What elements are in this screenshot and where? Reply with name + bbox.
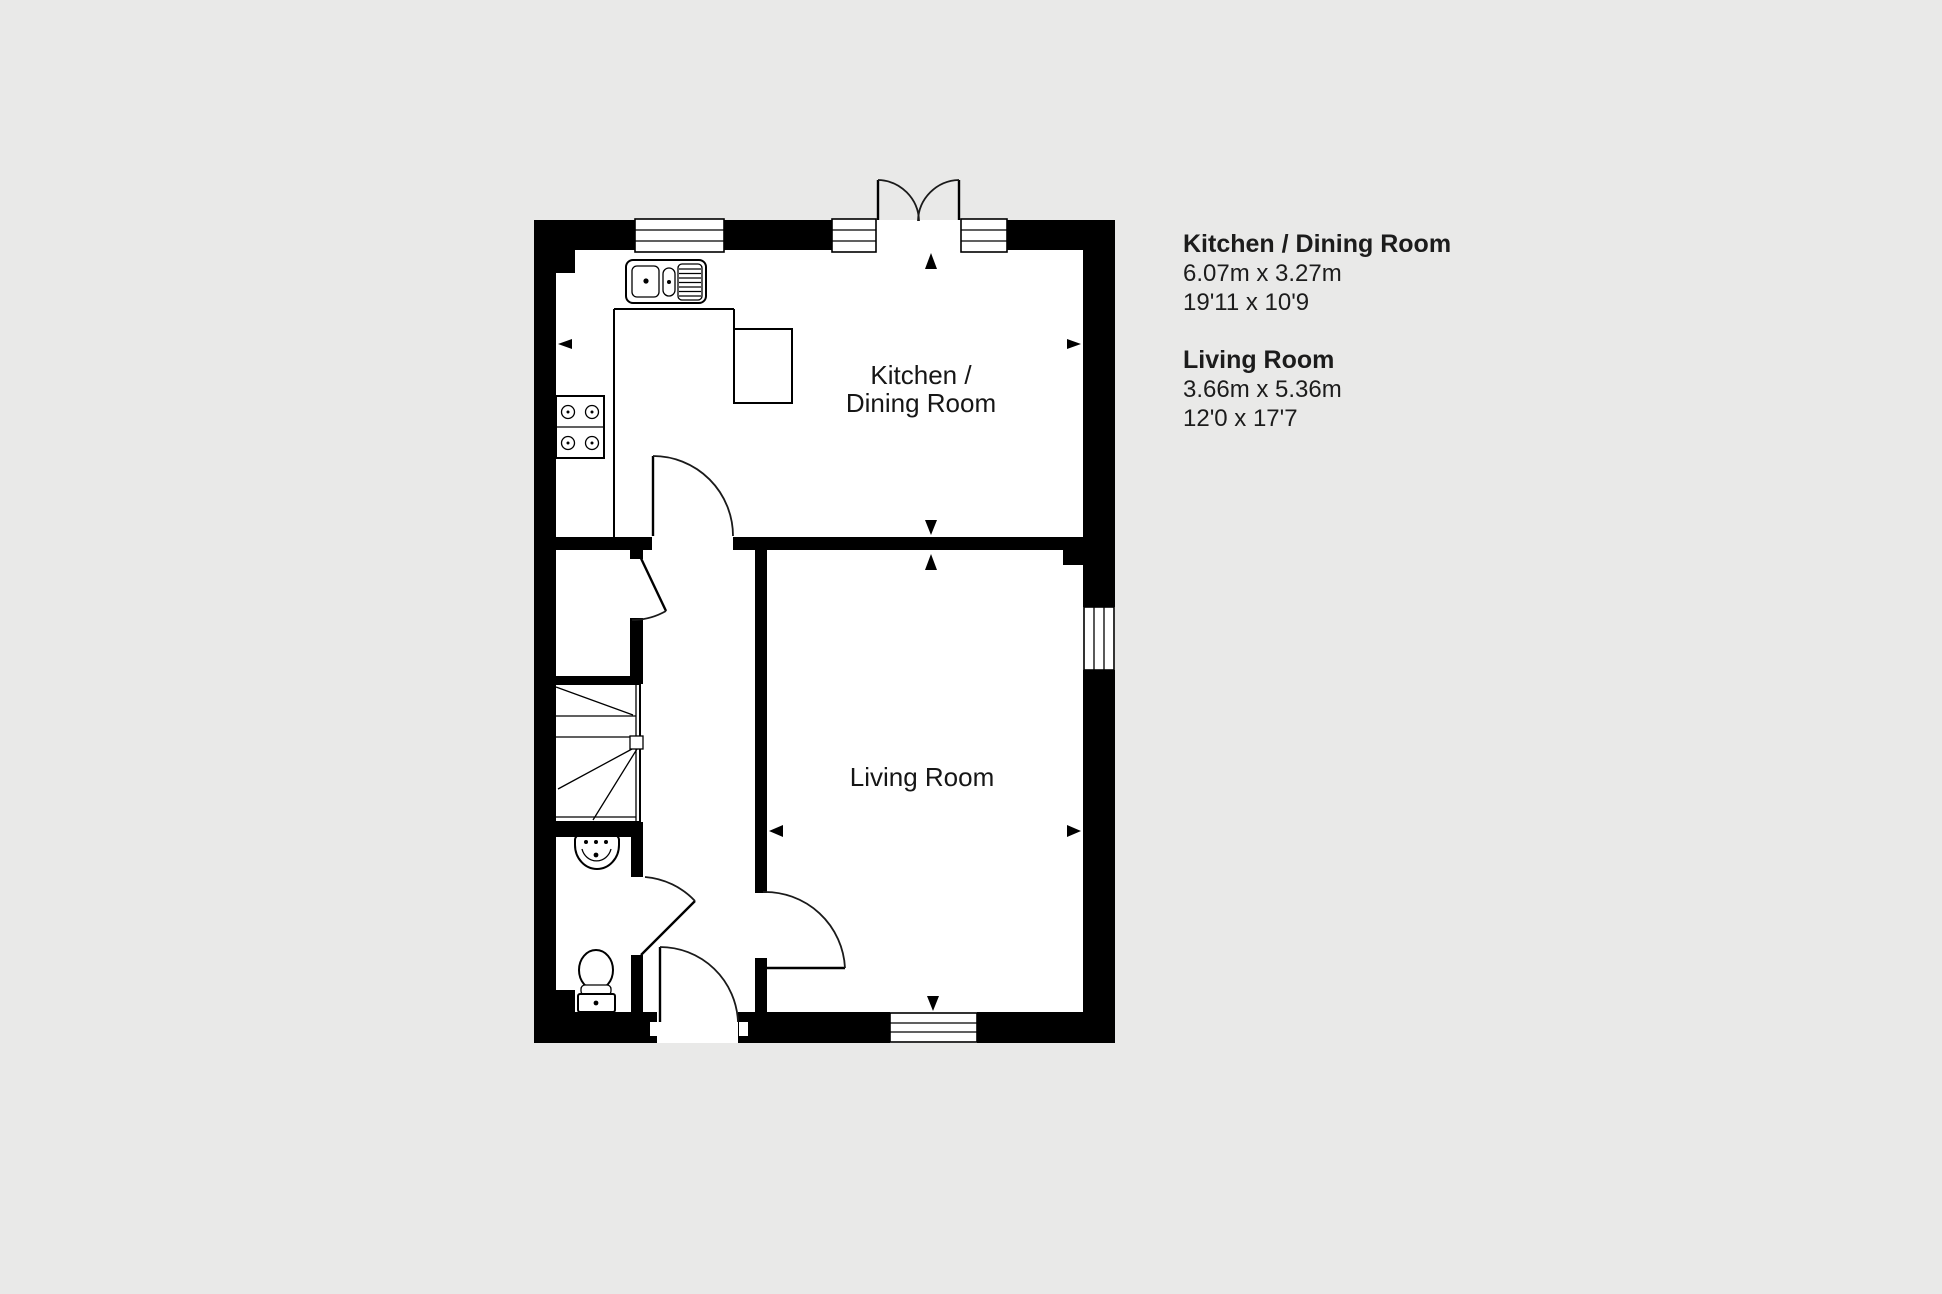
wall-living-left xyxy=(755,550,767,893)
wall-bottom xyxy=(738,1012,890,1043)
toilet-bowl xyxy=(579,950,613,990)
legend-room-name: Kitchen / Dining Room xyxy=(1183,230,1451,259)
kitchen-label-line1: Kitchen / xyxy=(870,360,972,390)
sink-tap xyxy=(643,278,648,283)
burner-dot xyxy=(567,411,570,414)
legend-room-metric: 3.66m x 5.36m xyxy=(1183,375,1451,404)
wall-left xyxy=(534,220,556,1043)
window-kitchen-top xyxy=(635,219,724,252)
legend: Kitchen / Dining Room 6.07m x 3.27m 19'1… xyxy=(1183,230,1451,462)
sink-tap xyxy=(667,280,671,284)
legend-room-metric: 6.07m x 3.27m xyxy=(1183,259,1451,288)
wall-step xyxy=(1063,548,1115,565)
french-doors xyxy=(878,180,959,221)
wall-stairs-top xyxy=(553,676,630,684)
stair-newel xyxy=(630,736,643,749)
window-frame xyxy=(832,219,876,252)
door-swing-arc xyxy=(918,180,959,221)
window-top-right-of-door xyxy=(961,219,1007,252)
basin-drain xyxy=(594,853,599,858)
floor-plan: Kitchen / Dining Room Living Room xyxy=(0,0,1942,1294)
wall-divider xyxy=(630,618,643,684)
wall-bottom xyxy=(977,1012,1115,1043)
legend-room-imperial: 19'11 x 10'9 xyxy=(1183,288,1451,317)
wall-bottom xyxy=(534,1012,657,1043)
legend-room-imperial: 12'0 x 17'7 xyxy=(1183,404,1451,433)
toilet-flush xyxy=(594,1001,599,1006)
door-jamb xyxy=(739,1022,748,1036)
wall-top xyxy=(1007,220,1115,250)
wall-stairs-bottom xyxy=(553,822,643,837)
wall-living-left xyxy=(755,958,767,1012)
wall-pier xyxy=(556,990,575,1012)
hob-icon xyxy=(556,396,604,458)
window-frame xyxy=(635,219,724,252)
sink-icon xyxy=(626,260,706,303)
burner-dot xyxy=(591,442,594,445)
wall-wc xyxy=(631,837,643,877)
window-frame xyxy=(961,219,1007,252)
wall-right xyxy=(1083,670,1115,1043)
window-living-right xyxy=(1084,607,1114,670)
wall-kitchen-living xyxy=(556,537,652,550)
wall-step xyxy=(556,250,575,273)
burner-dot xyxy=(567,442,570,445)
drainer-lines xyxy=(679,269,701,296)
floorplan-page: Kitchen / Dining Room Living Room Kitche… xyxy=(0,0,1942,1294)
basin-tap xyxy=(594,840,598,844)
door-swing-arc xyxy=(878,180,919,221)
stair-outline xyxy=(553,684,640,822)
burner-dot xyxy=(591,411,594,414)
legend-kitchen-block: Kitchen / Dining Room 6.07m x 3.27m 19'1… xyxy=(1183,230,1451,317)
living-room-label: Living Room xyxy=(850,762,995,792)
window-frame xyxy=(890,1013,977,1042)
basin-tap xyxy=(604,840,608,844)
window-frame xyxy=(1084,607,1114,670)
staircase xyxy=(553,684,643,822)
wall-kitchen-living xyxy=(733,537,1083,550)
window-top-left-of-door xyxy=(832,219,876,252)
window-living-bottom xyxy=(890,1013,977,1042)
legend-room-name: Living Room xyxy=(1183,346,1451,375)
toilet-icon xyxy=(578,950,615,1012)
legend-living-block: Living Room 3.66m x 5.36m 12'0 x 17'7 xyxy=(1183,346,1451,433)
kitchen-label-line2: Dining Room xyxy=(846,388,996,418)
basin-tap xyxy=(584,840,588,844)
door-jamb xyxy=(650,1022,659,1036)
wall-top xyxy=(724,220,832,250)
wall-wc xyxy=(631,955,643,1012)
